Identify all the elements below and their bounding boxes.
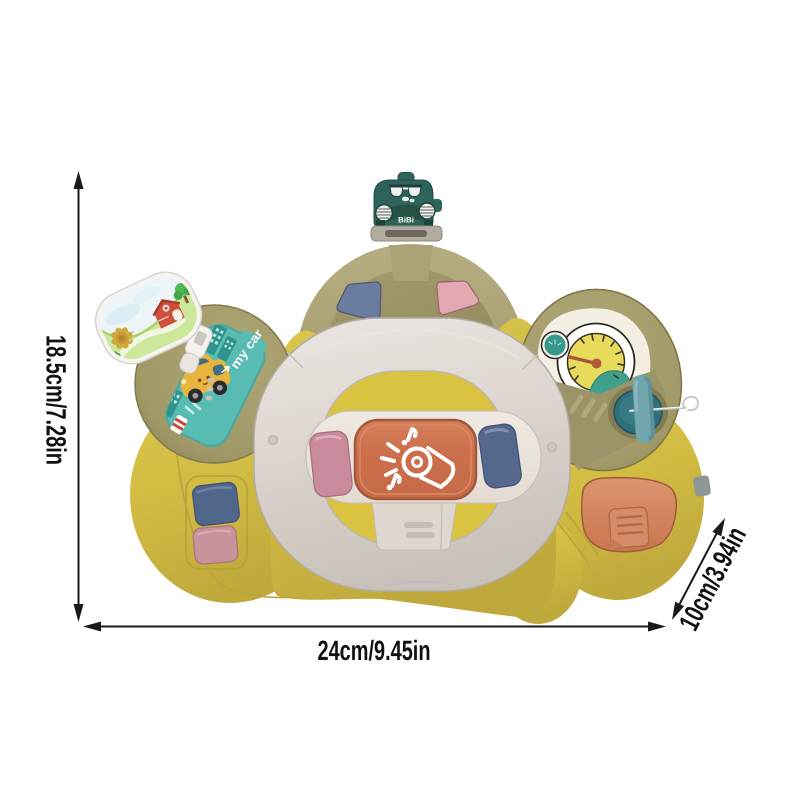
svg-text:24cm/9.45in: 24cm/9.45in	[318, 635, 431, 666]
svg-text:18.5cm/7.28in: 18.5cm/7.28in	[41, 335, 72, 465]
svg-text:BiBi: BiBi	[398, 216, 414, 225]
